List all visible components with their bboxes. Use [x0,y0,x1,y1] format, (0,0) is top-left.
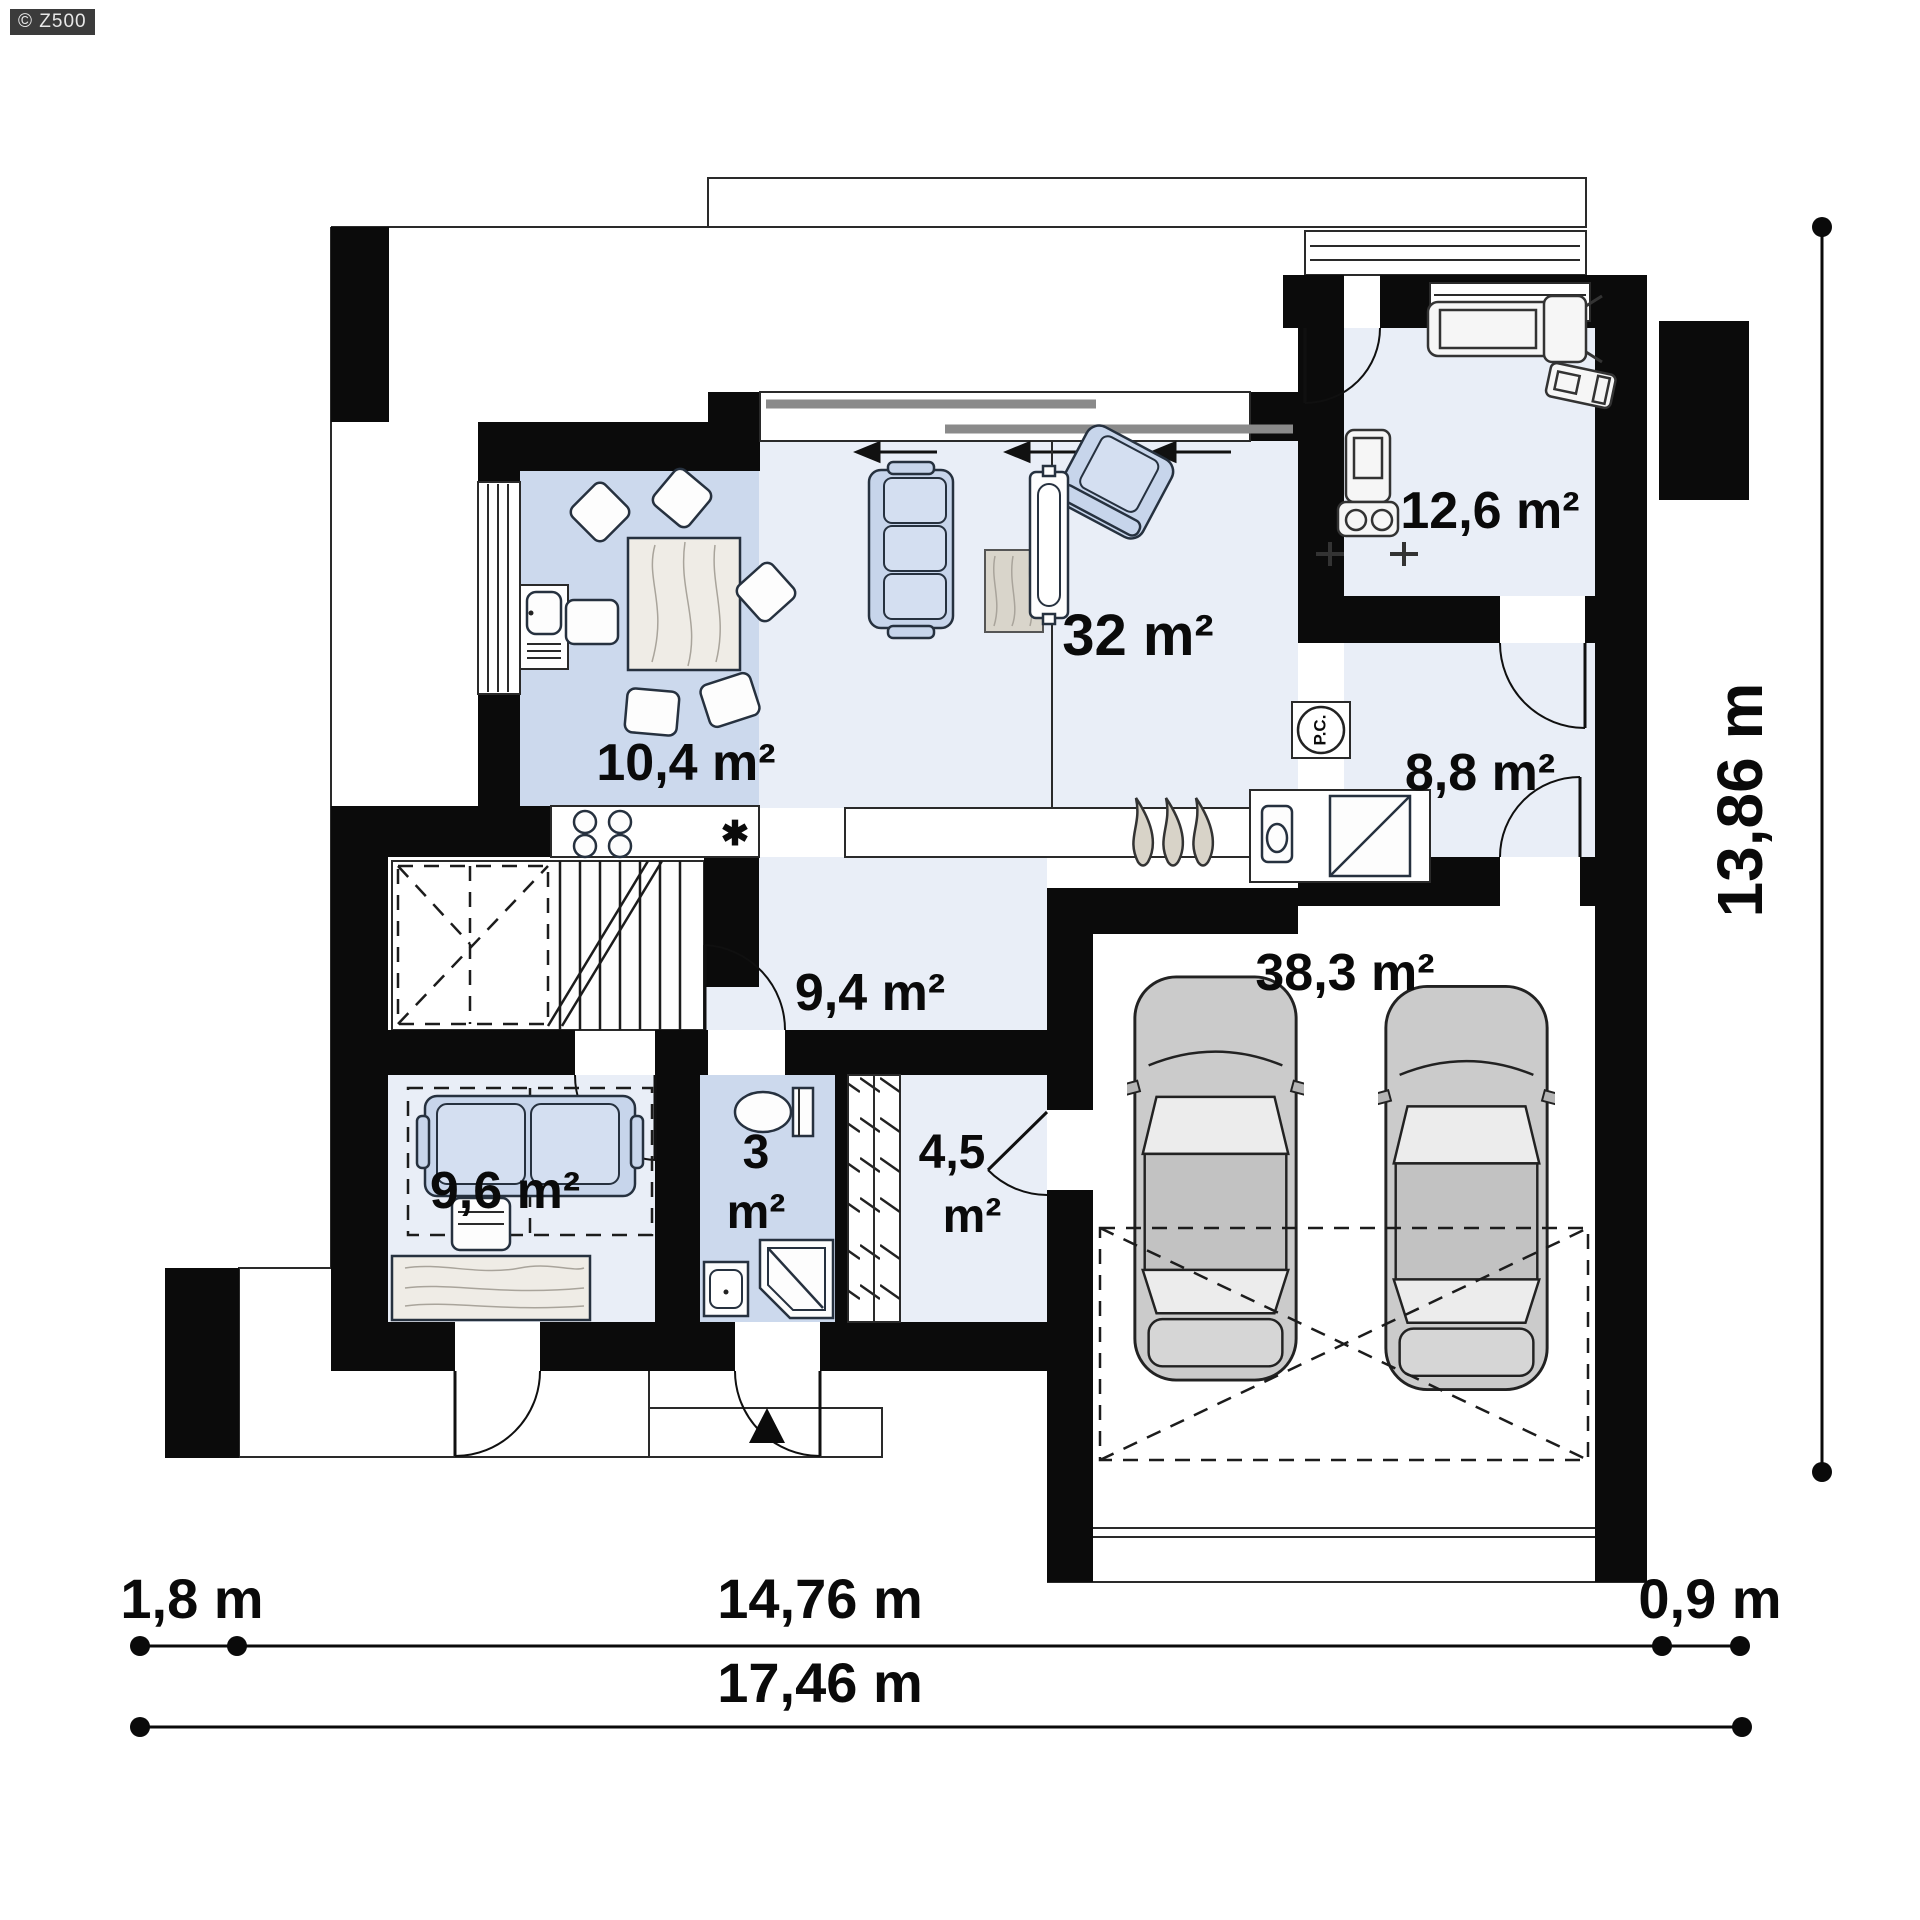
room-label-living: 32 m² [1062,603,1214,668]
shower-base-icon [1330,796,1410,876]
living-glazing [760,392,1250,441]
boiler-label: P.C. [1310,715,1329,746]
kitchen-sink-unit [520,585,568,669]
stairs [392,861,704,1030]
sink-marker-icon: ✱ [721,815,750,853]
car-icon [1369,986,1564,1389]
floor-plan-svg: ✱ [0,0,1920,1920]
room-label-wardrobe-value: 4,5 [919,1126,986,1179]
dim-label-left-offset: 1,8 m [120,1567,263,1630]
top-terrace-outline [708,178,1586,227]
dining-table [628,538,740,670]
room-label-garage: 38,3 m² [1255,944,1434,1002]
washbasin-icon [704,1262,748,1316]
dim-label-right-offset: 0,9 m [1638,1567,1781,1630]
car-icon [1118,977,1313,1380]
wardrobe-fixtures [848,1075,900,1322]
dim-label-total-height: 13,86 m [1704,683,1776,918]
dim-label-main-width: 14,76 m [717,1567,923,1630]
gym-front-window-band [1305,231,1586,275]
z500-watermark: © Z500 [10,9,95,35]
room-label-office: 9,6 m² [430,1162,580,1220]
floor-plan-page: ✱ [0,0,1920,1920]
sofa [869,462,953,638]
terrace-wall-stub [165,1268,239,1458]
hearth-bench [845,808,1298,857]
room-label-bath-value: 3 [743,1126,770,1179]
room-label-utility: 8,8 m² [1405,744,1555,802]
room-label-wardrobe-unit: m² [943,1190,1002,1243]
room-label-bath-unit: m² [727,1186,786,1239]
desk [392,1256,590,1320]
tall-cabinet [1030,466,1068,624]
room-label-kitchen: 10,4 m² [596,734,775,792]
room-label-hall: 9,4 m² [795,964,945,1022]
garage-contents [1100,977,1588,1460]
chimney-block [1659,321,1749,500]
treadmill-icon [1428,296,1602,362]
dim-label-total-width: 17,46 m [717,1651,923,1714]
room-label-gym: 12,6 m² [1400,482,1579,540]
small-sink-icon [1262,806,1292,862]
boiler-unit: P.C. [1292,702,1350,758]
